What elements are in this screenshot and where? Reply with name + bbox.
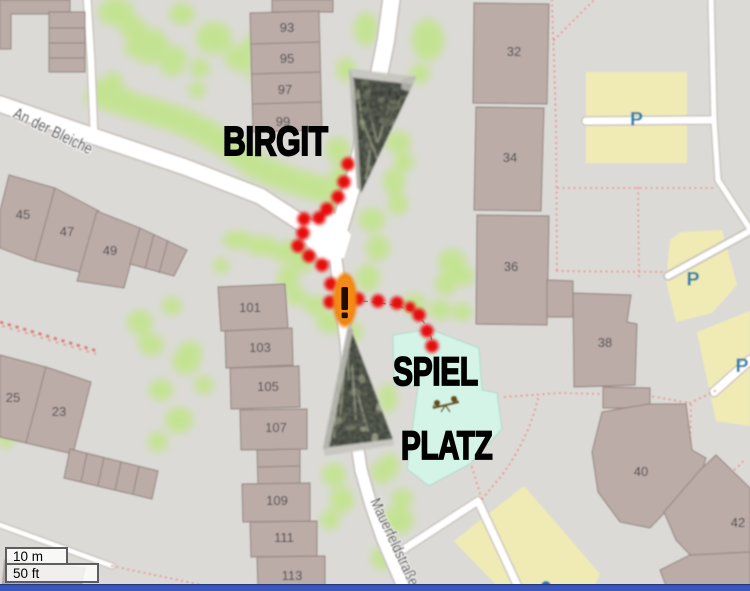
svg-text:PLATZ: PLATZ (401, 424, 492, 468)
svg-text:97: 97 (278, 82, 292, 97)
svg-text:10 m: 10 m (13, 549, 43, 564)
svg-text:95: 95 (280, 51, 294, 66)
svg-text:P: P (630, 109, 643, 131)
svg-text:50 ft: 50 ft (13, 566, 40, 581)
svg-text:103: 103 (249, 340, 271, 355)
svg-text:42: 42 (731, 515, 745, 530)
svg-text:45: 45 (16, 207, 30, 222)
svg-text:111: 111 (274, 530, 294, 545)
svg-text:23: 23 (52, 404, 66, 419)
svg-text:25: 25 (6, 390, 20, 405)
svg-text:P: P (686, 269, 699, 291)
svg-text:49: 49 (103, 243, 117, 258)
svg-text:32: 32 (507, 44, 521, 59)
svg-text:113: 113 (282, 568, 303, 583)
svg-text:101: 101 (239, 300, 261, 315)
svg-text:105: 105 (257, 379, 279, 394)
svg-text:40: 40 (634, 464, 648, 479)
svg-text:BIRGIT: BIRGIT (223, 118, 328, 164)
svg-text:SPIEL: SPIEL (393, 350, 478, 394)
svg-text:107: 107 (265, 420, 287, 435)
svg-text:47: 47 (60, 224, 74, 239)
svg-text:109: 109 (266, 493, 288, 508)
svg-text:P: P (735, 355, 748, 377)
svg-text:93: 93 (280, 20, 294, 35)
svg-text:38: 38 (598, 335, 612, 350)
svg-text:36: 36 (504, 259, 518, 274)
svg-text:34: 34 (503, 150, 517, 165)
